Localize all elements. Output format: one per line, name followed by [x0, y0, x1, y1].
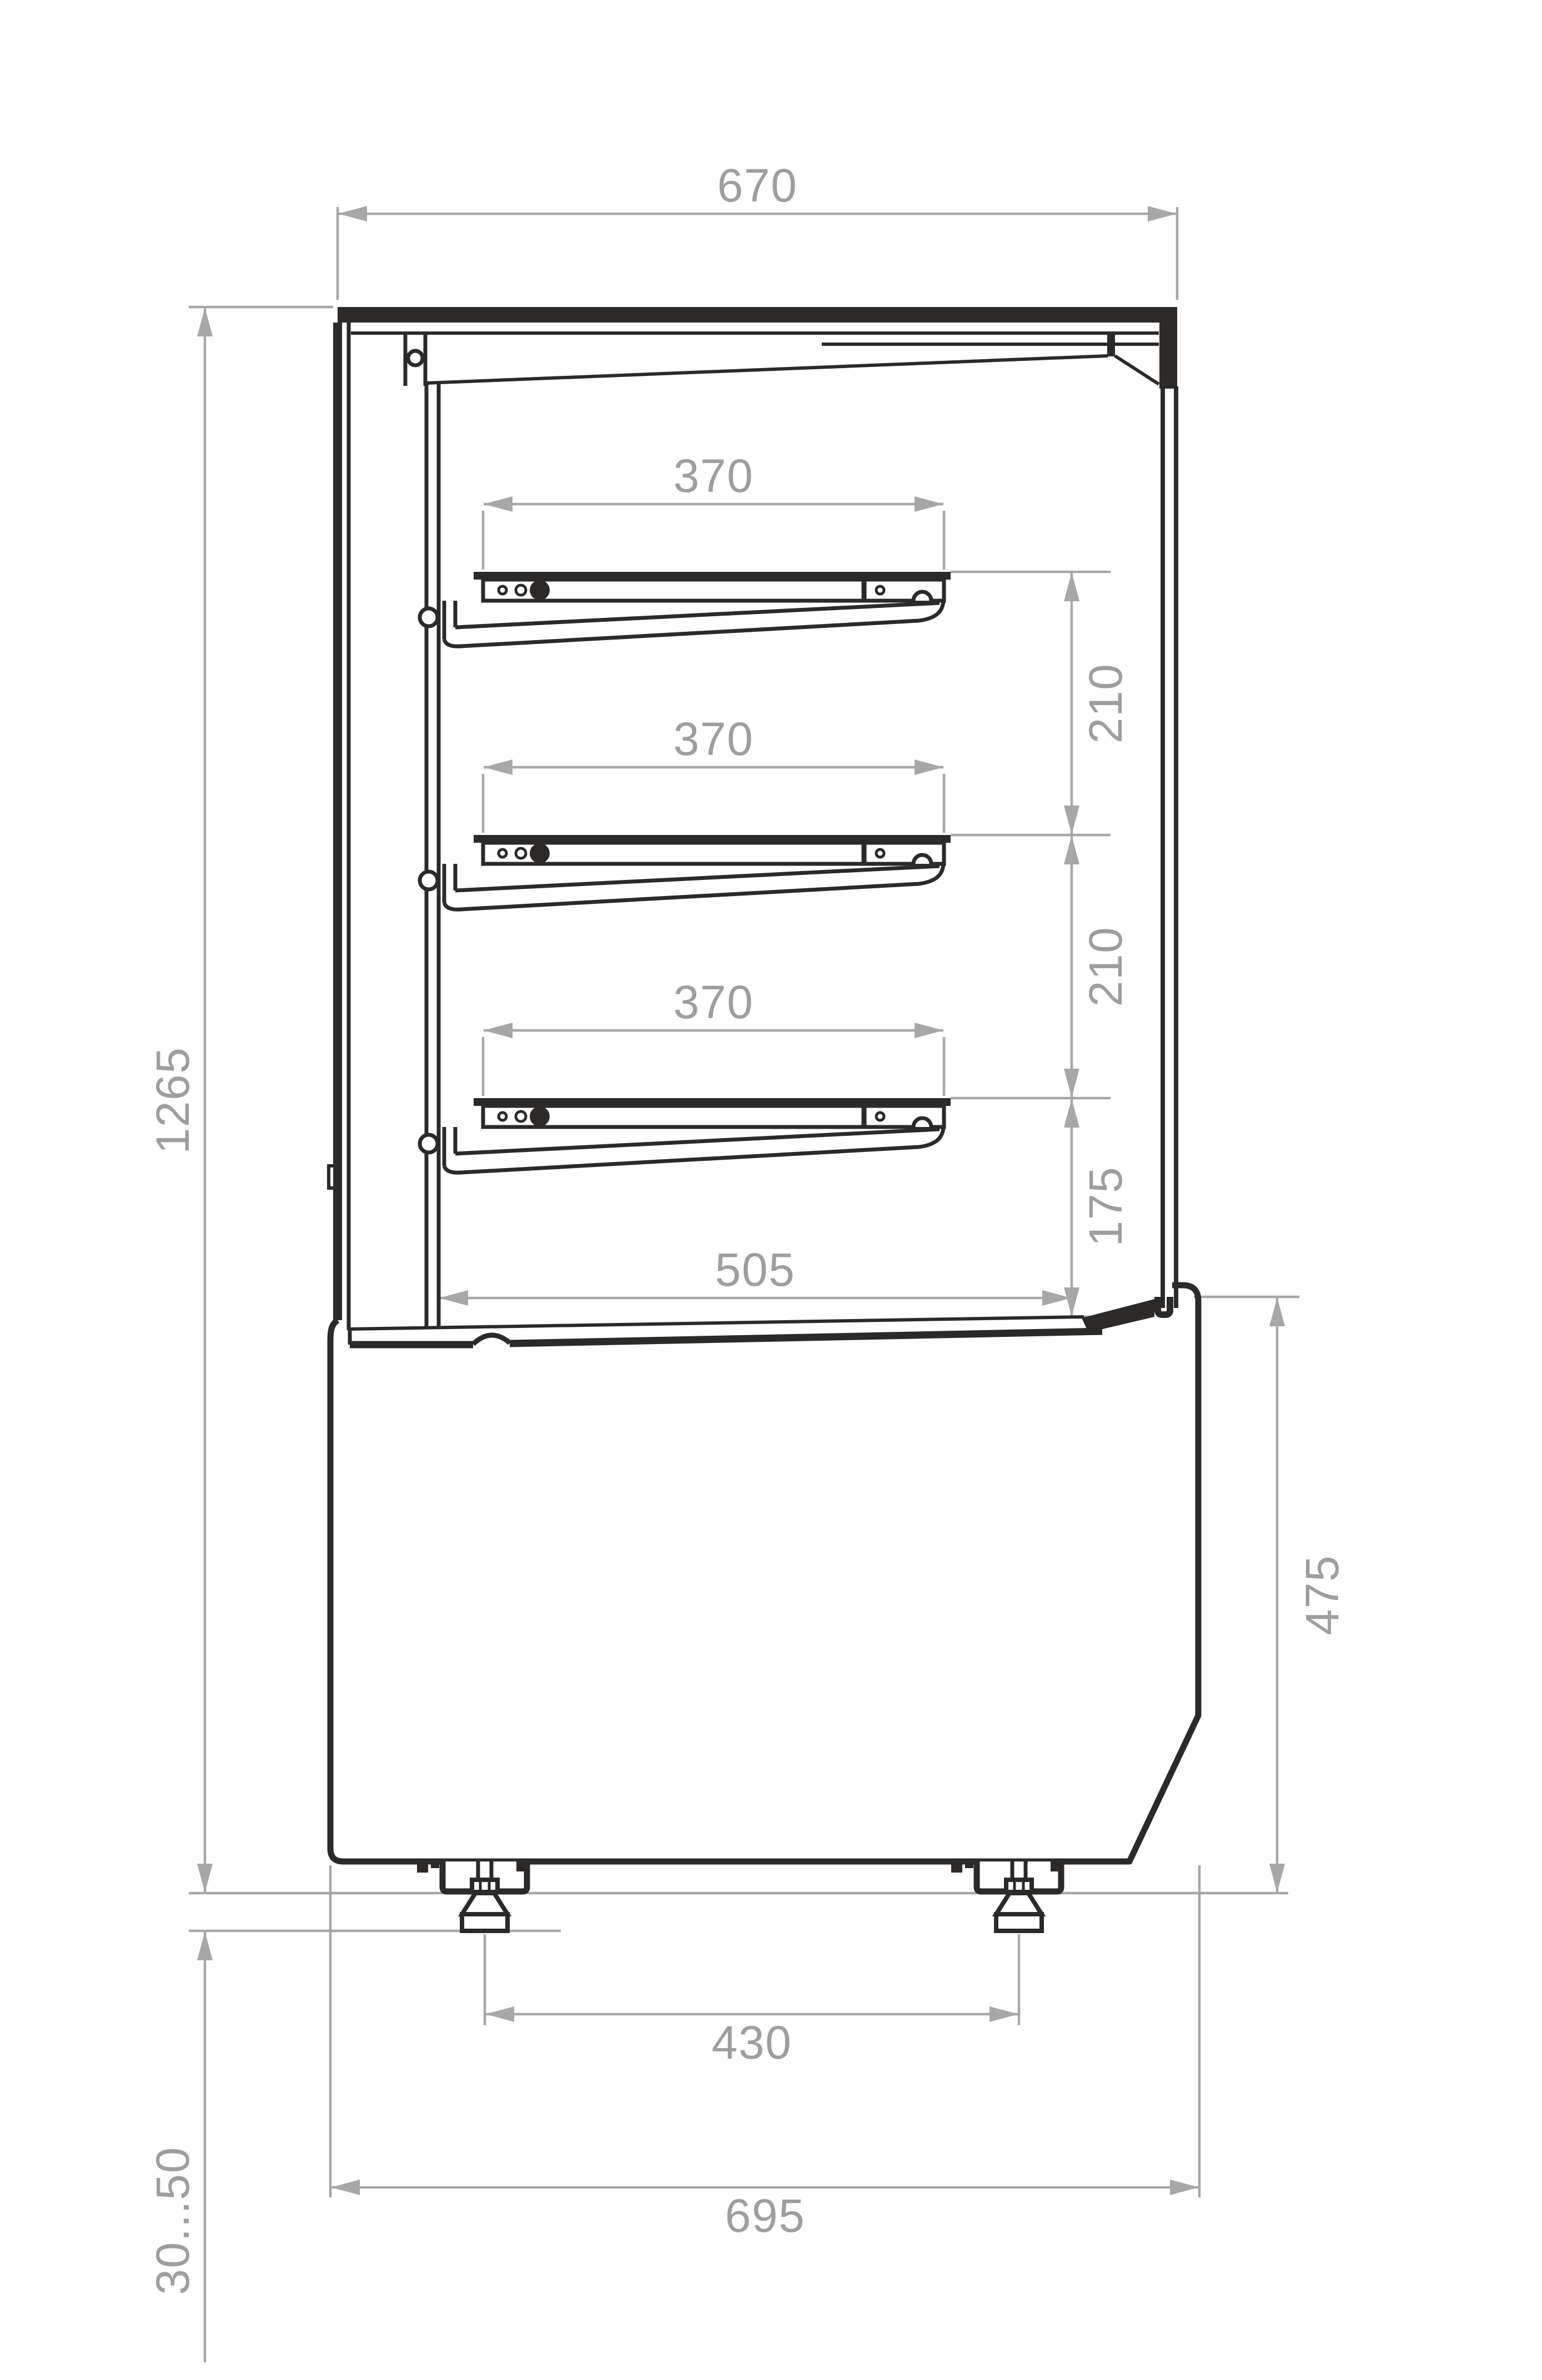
dim-label-shelf-2-depth: 370	[674, 713, 754, 765]
ext-feet-centers	[485, 1934, 1019, 2025]
shelf-1	[444, 576, 951, 646]
panel-hole	[420, 872, 438, 889]
dim-label-shelf-gap-1: 210	[1079, 663, 1132, 744]
base-cabinet	[330, 1285, 1198, 1861]
back-panel-lines	[426, 383, 439, 1329]
panel-hole	[420, 1135, 438, 1153]
dim-label-foot-adjust-range: 30...50	[147, 2146, 199, 2295]
shelf-2	[444, 839, 951, 909]
shelf-3	[444, 1102, 951, 1173]
back-panel-holes	[420, 608, 438, 1153]
deck-sill-line	[350, 1331, 1102, 1345]
foot-right	[951, 1861, 1061, 1931]
ext-shelf-3	[483, 1037, 944, 1096]
display-case-technical-drawing: 670370370370210210175505126547543069530.…	[0, 0, 1542, 2380]
deck-drain-hump	[473, 1335, 510, 1344]
drawing-canvas: 670370370370210210175505126547543069530.…	[0, 0, 1542, 2380]
dim-label-shelf-gap-2: 210	[1079, 927, 1132, 1007]
dim-label-shelf-3-depth: 370	[674, 976, 754, 1028]
canopy-front-slant	[1115, 356, 1159, 384]
display-case	[329, 307, 1198, 1931]
deck-top-line	[350, 1317, 1084, 1329]
dim-label-overall-height: 1265	[147, 1047, 199, 1154]
glass-pane	[1163, 386, 1176, 1308]
panel-hole	[420, 608, 438, 626]
canopy-top-panel	[338, 307, 1177, 323]
dimension-system: 670370370370210210175505126547543069530.…	[147, 159, 1348, 2362]
dimension-labels: 670370370370210210175505126547543069530.…	[147, 159, 1348, 2295]
ext-shelf-2	[483, 774, 944, 833]
dim-label-bottom-width: 695	[725, 2190, 806, 2242]
back-wall	[329, 323, 349, 1330]
top-canopy	[338, 307, 1177, 386]
interior-back-panel	[426, 383, 439, 1329]
base-cabinet-outline	[330, 1285, 1198, 1861]
canopy-underside	[426, 356, 1108, 383]
foot-left	[417, 1861, 527, 1931]
dim-label-feet-spacing: 430	[712, 2016, 792, 2069]
dim-label-top-width: 670	[717, 159, 798, 212]
dim-label-deck-depth: 505	[715, 1244, 796, 1296]
display-deck	[350, 1317, 1102, 1345]
canopy-bracket-hole	[408, 351, 423, 365]
glass-top-frame	[1159, 307, 1177, 389]
back-wall-jog	[329, 1166, 333, 1188]
dim-label-deck-clearance: 175	[1079, 1166, 1132, 1247]
ext-shelf-1	[483, 511, 944, 570]
dim-label-shelf-1-depth: 370	[674, 450, 754, 502]
dim-label-base-height: 475	[1296, 1555, 1348, 1636]
glass-sill-wedge	[1082, 1299, 1154, 1332]
